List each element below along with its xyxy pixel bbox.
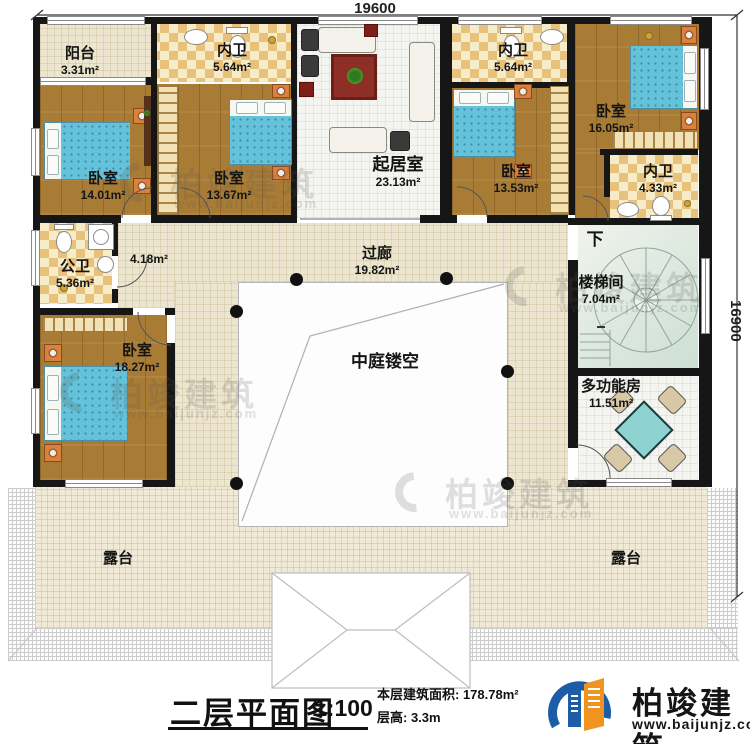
window	[47, 16, 145, 25]
brand-logo-icon	[542, 674, 628, 742]
sink-icon	[540, 29, 564, 45]
pillow	[47, 155, 59, 175]
window	[31, 230, 40, 286]
toilet-icon	[500, 27, 522, 34]
room-label-bedroom1401: 卧室 14.01m²	[81, 170, 126, 202]
wardrobe	[42, 317, 128, 332]
brand-url: www.baijunjz.com	[632, 716, 750, 732]
pillow	[47, 409, 59, 435]
logo-building-orange	[584, 678, 604, 731]
window	[610, 16, 692, 25]
watermark-logo-icon	[52, 364, 108, 420]
nightstand	[681, 112, 697, 130]
sofa	[409, 42, 435, 122]
mattress	[230, 116, 291, 164]
pillow	[264, 102, 286, 114]
armchair	[301, 29, 319, 51]
mattress	[631, 46, 683, 108]
armchair	[390, 131, 410, 151]
toilet-icon	[650, 215, 672, 221]
corridor-floor	[118, 223, 568, 282]
wall	[600, 149, 698, 155]
room-label-bedroom1353: 卧室 13.53m²	[494, 163, 539, 195]
nightstand	[44, 344, 62, 362]
bed	[229, 99, 292, 165]
brand-name: 柏竣建筑	[632, 678, 750, 744]
washer-drum	[93, 229, 109, 245]
room-label-hall: 4.18m²	[130, 252, 168, 266]
side-table	[364, 24, 378, 37]
balcony-slider-window	[40, 77, 146, 86]
terrace-edge-bottom	[8, 628, 738, 661]
nightstand	[514, 84, 532, 99]
wall	[165, 308, 175, 315]
watermark-logo-icon	[387, 464, 443, 520]
watermark-url: www.baijunjz.com	[114, 406, 258, 421]
logo-swoosh	[553, 686, 607, 726]
pillow	[47, 129, 59, 149]
toilet-icon	[54, 224, 74, 230]
sink-icon	[97, 256, 114, 273]
wall	[33, 215, 121, 223]
floor-lamp-icon	[645, 32, 653, 40]
shower-icon	[268, 36, 276, 44]
room-label-courtyard: 中庭镂空	[351, 352, 419, 372]
column-dot	[230, 477, 243, 490]
plan-scale: 1:100	[314, 695, 373, 722]
room-label-bedroom1605: 卧室 16.05m²	[589, 103, 634, 135]
pillow	[684, 52, 696, 74]
wall	[33, 308, 133, 315]
watermark: 柏竣建筑 www.baijunjz.com	[60, 368, 320, 426]
title-underline	[168, 727, 368, 730]
watermark: 柏竣建筑 www.baijunjz.com	[395, 468, 655, 526]
floor-area-note: 本层建筑面积: 178.78m²	[377, 684, 519, 703]
window	[700, 48, 709, 110]
window	[458, 16, 542, 25]
terrace-edge-right	[707, 488, 738, 628]
room-label-stairwell: 楼梯间 7.04m²	[578, 274, 623, 306]
window	[31, 388, 40, 434]
shower-icon	[684, 200, 691, 207]
room-label-bedroom1367: 卧室 13.67m²	[207, 170, 252, 202]
window	[31, 128, 40, 176]
room-label-publicbath: 公卫 5.36m²	[56, 258, 94, 290]
dimension-top: 19600	[354, 0, 396, 17]
floor-plan: 柏竣建筑 www.baijunjz.com 柏竣建筑 www.baijunjz.…	[0, 0, 750, 744]
wall	[604, 155, 610, 197]
column-dot	[440, 272, 453, 285]
pillow	[236, 102, 258, 114]
tv-cabinet	[144, 96, 151, 166]
wall	[568, 368, 712, 376]
sink-icon	[184, 29, 208, 45]
pillow	[47, 375, 59, 401]
logo-windows	[571, 688, 600, 712]
plant-icon	[347, 68, 363, 84]
dimension-right: 16900	[727, 300, 744, 360]
wardrobe	[550, 86, 569, 215]
column-dot	[230, 305, 243, 318]
wall	[112, 289, 118, 303]
sink-icon	[617, 202, 639, 217]
stair-down-label: 下	[587, 230, 604, 250]
room-label-terrace-right: 露台	[611, 550, 641, 568]
side-table	[299, 82, 314, 97]
nightstand	[272, 84, 290, 98]
nightstand	[681, 26, 697, 44]
mattress	[454, 106, 514, 156]
room-label-multiroom: 多功能房 11.51m²	[581, 378, 641, 410]
room-label-bath3: 内卫 4.33m²	[639, 163, 677, 195]
pillow	[684, 80, 696, 102]
pillow	[459, 92, 481, 104]
toilet-icon	[652, 196, 670, 216]
wall	[487, 215, 568, 223]
nightstand	[44, 444, 62, 462]
toilet-icon	[226, 27, 248, 34]
pillow	[487, 92, 509, 104]
floor-height-note: 层高: 3.3m	[377, 707, 441, 726]
room-label-bath2: 内卫 5.64m²	[494, 42, 532, 74]
window	[65, 479, 143, 488]
room-label-corridor: 过廊 19.82m²	[355, 245, 400, 277]
wall	[145, 77, 157, 85]
wall	[440, 24, 452, 215]
logo-building-blue	[568, 690, 581, 727]
column-dot	[290, 273, 303, 286]
watermark: 柏竣建筑 www.baijunjz.com	[505, 262, 745, 320]
wall	[151, 215, 297, 223]
watermark-logo-icon	[497, 258, 553, 314]
room-label-living: 起居室 23.13m²	[373, 155, 424, 190]
bed	[453, 89, 515, 157]
room-label-bath1: 内卫 5.64m²	[213, 42, 251, 74]
room-label-bedroom1827: 卧室 18.27m²	[115, 342, 160, 374]
bed	[630, 45, 698, 109]
sofa	[329, 127, 387, 153]
wall	[420, 215, 457, 223]
column-dot	[501, 365, 514, 378]
toilet-icon	[56, 231, 72, 253]
wall	[568, 218, 712, 225]
armchair	[301, 55, 319, 77]
washer-icon	[88, 224, 114, 250]
plant-icon	[144, 110, 150, 116]
room-label-balcony: 阳台 3.31m²	[61, 45, 99, 77]
watermark-url: www.baijunjz.com	[449, 506, 593, 521]
room-label-terrace-left: 露台	[103, 550, 133, 568]
